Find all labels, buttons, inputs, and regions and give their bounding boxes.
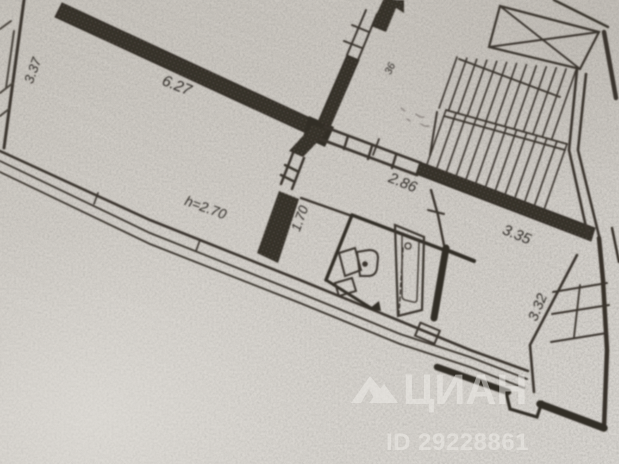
- svg-text:ЦИАН: ЦИАН: [403, 366, 527, 414]
- svg-text:ID 29228861: ID 29228861: [386, 429, 529, 456]
